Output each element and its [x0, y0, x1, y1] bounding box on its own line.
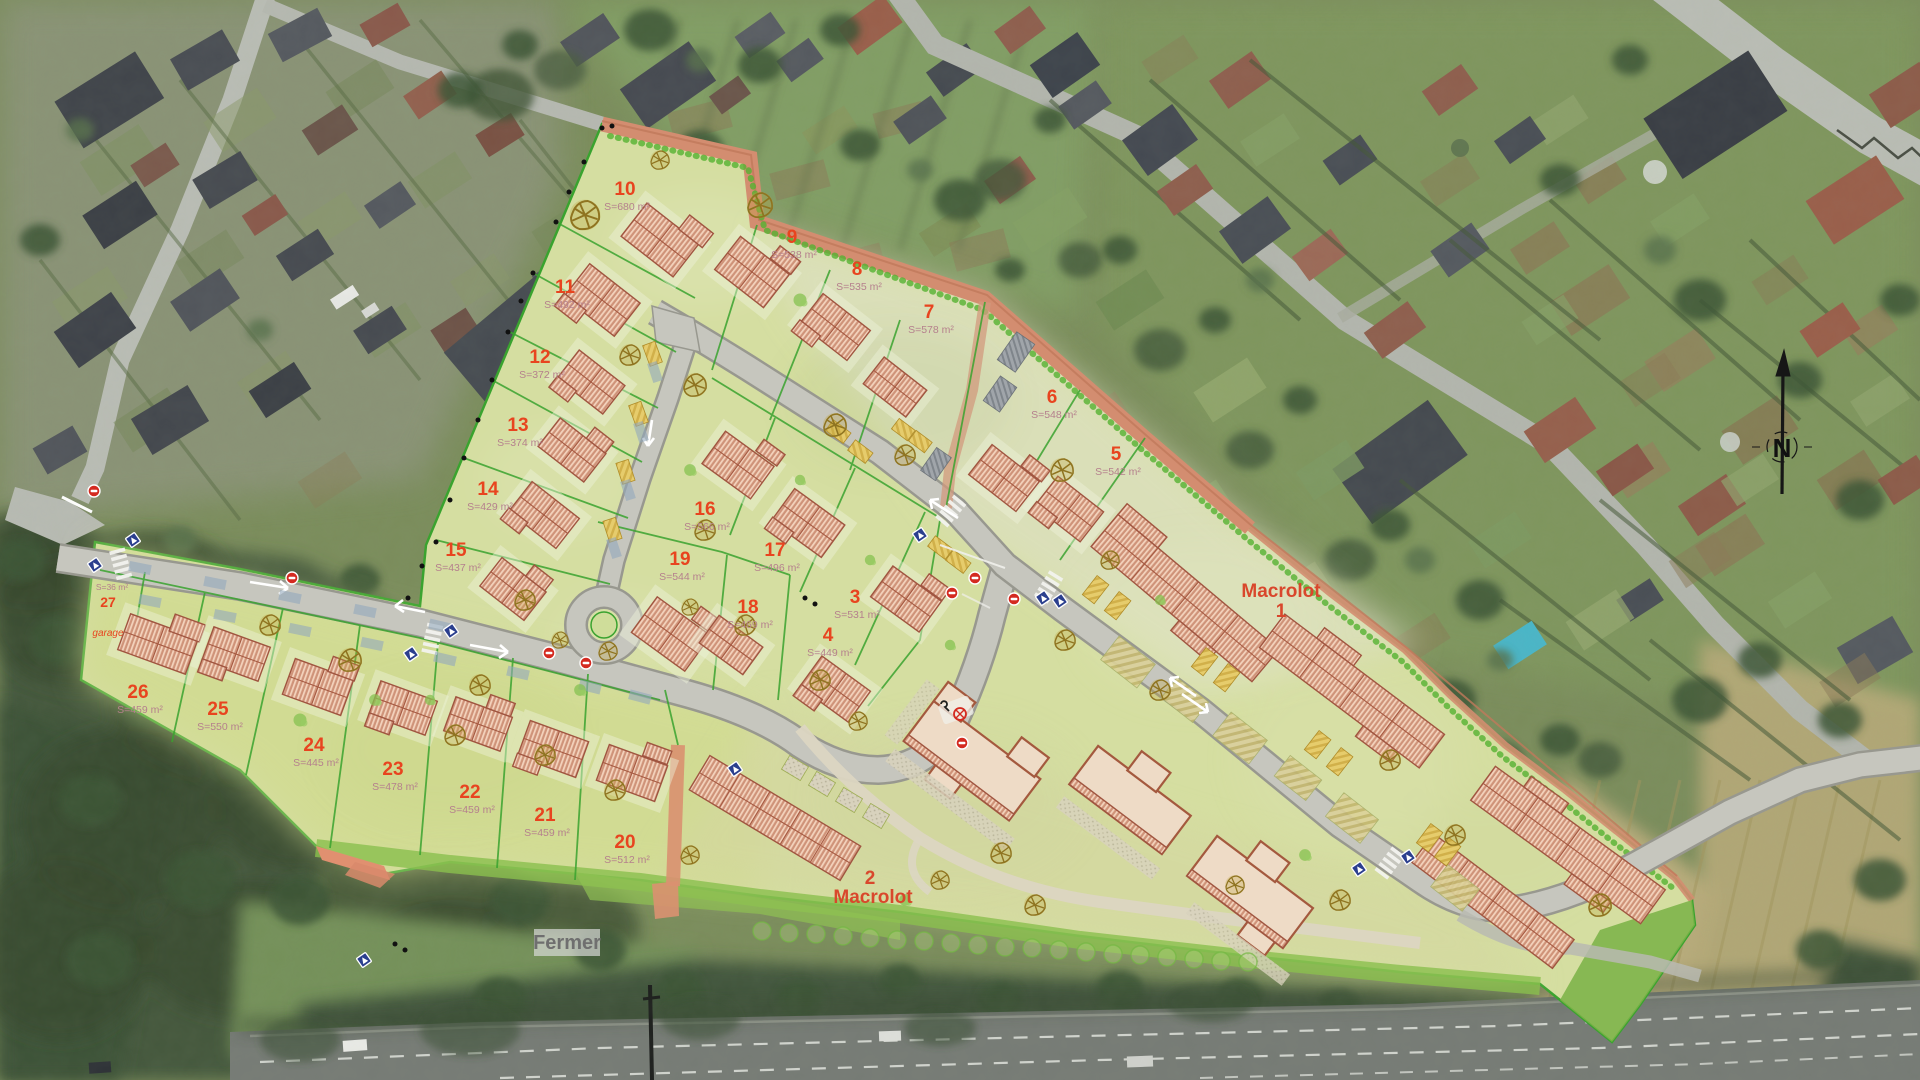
- svg-text:6: 6: [1047, 387, 1058, 408]
- svg-text:11: 11: [555, 277, 576, 298]
- svg-text:15: 15: [445, 540, 467, 561]
- svg-text:24: 24: [303, 735, 325, 756]
- svg-text:3: 3: [850, 587, 861, 608]
- svg-text:Fermer: Fermer: [533, 932, 601, 954]
- svg-text:S=578 m²: S=578 m²: [908, 324, 954, 336]
- svg-text:S=372 m²: S=372 m²: [519, 369, 565, 381]
- svg-text:S=492 m²: S=492 m²: [544, 299, 590, 311]
- svg-text:18: 18: [737, 597, 758, 618]
- svg-text:21: 21: [534, 805, 556, 826]
- svg-text:S=566 m²: S=566 m²: [684, 521, 730, 533]
- svg-text:12: 12: [529, 347, 550, 368]
- svg-text:S=445 m²: S=445 m²: [293, 757, 339, 769]
- svg-text:S=680 m²: S=680 m²: [604, 201, 650, 213]
- svg-text:17: 17: [764, 540, 785, 561]
- svg-text:25: 25: [207, 699, 229, 720]
- svg-text:S=538 m²: S=538 m²: [771, 249, 817, 261]
- svg-text:S=544 m²: S=544 m²: [659, 571, 705, 583]
- svg-text:S=459 m²: S=459 m²: [524, 827, 570, 839]
- svg-text:13: 13: [507, 415, 528, 436]
- svg-text:S=542 m²: S=542 m²: [1095, 466, 1141, 478]
- svg-text:23: 23: [382, 759, 403, 780]
- svg-text:7: 7: [924, 302, 935, 323]
- svg-text:S=374 m²: S=374 m²: [497, 437, 543, 449]
- svg-text:S=459 m²: S=459 m²: [449, 804, 495, 816]
- svg-text:S=531 m²: S=531 m²: [834, 609, 880, 621]
- svg-text:S=535 m²: S=535 m²: [836, 281, 882, 293]
- svg-text:22: 22: [459, 782, 480, 803]
- svg-text:Macrolot: Macrolot: [833, 887, 913, 908]
- svg-text:S=449 m²: S=449 m²: [807, 647, 853, 659]
- svg-text:9: 9: [787, 227, 798, 248]
- svg-text:S=512 m²: S=512 m²: [604, 854, 650, 866]
- svg-text:27: 27: [100, 594, 116, 610]
- svg-text:4: 4: [823, 625, 834, 646]
- svg-text:S=459 m²: S=459 m²: [117, 704, 163, 716]
- svg-text:1: 1: [1276, 601, 1287, 622]
- svg-text:2: 2: [865, 868, 876, 889]
- svg-text:26: 26: [127, 682, 148, 703]
- svg-text:S=550 m²: S=550 m²: [197, 721, 243, 733]
- svg-text:5: 5: [1111, 444, 1122, 465]
- svg-text:14: 14: [477, 479, 499, 500]
- svg-text:S=429 m²: S=429 m²: [467, 501, 513, 513]
- svg-text:S=548 m²: S=548 m²: [1031, 409, 1077, 421]
- svg-text:8: 8: [852, 259, 863, 280]
- svg-text:S=36 m²: S=36 m²: [96, 582, 129, 592]
- svg-text:19: 19: [669, 549, 690, 570]
- svg-text:S=469 m²: S=469 m²: [727, 619, 773, 631]
- svg-text:N: N: [1773, 433, 1792, 463]
- svg-text:S=437 m²: S=437 m²: [435, 562, 481, 574]
- svg-text:10: 10: [614, 179, 635, 200]
- svg-text:S=478 m²: S=478 m²: [372, 781, 418, 793]
- svg-text:Macrolot: Macrolot: [1241, 581, 1321, 602]
- svg-text:20: 20: [614, 832, 635, 853]
- svg-text:S=496 m²: S=496 m²: [754, 562, 800, 574]
- svg-text:garage: garage: [92, 628, 124, 639]
- svg-text:16: 16: [694, 499, 715, 520]
